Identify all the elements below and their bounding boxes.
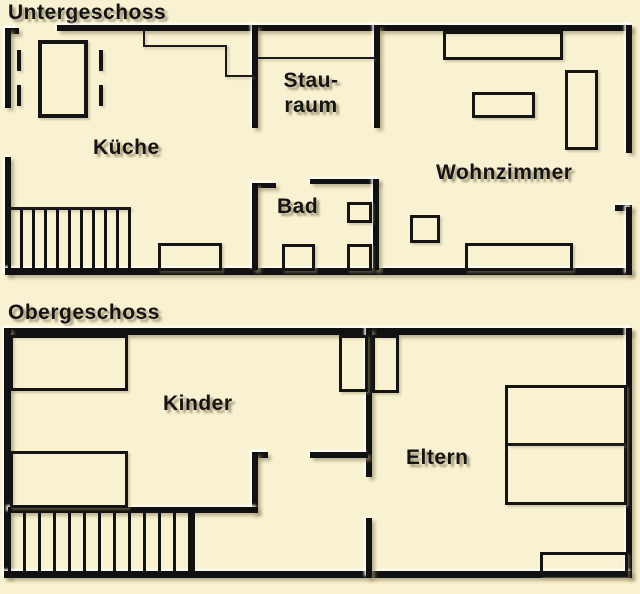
- kitchen-chair-mark: [17, 50, 21, 71]
- floor-plan: Untergeschoss Küche Stau- raum Bad Wohn: [0, 0, 640, 594]
- hall-left-wall: [252, 452, 258, 513]
- kitchen-counter-line: [225, 75, 253, 77]
- room-label-kueche: Küche: [93, 136, 160, 160]
- room-label-eltern: Eltern: [406, 446, 469, 470]
- eltern-bed-divider: [508, 443, 624, 446]
- upper-stairs: [8, 513, 195, 571]
- kitchen-chair-mark: [99, 50, 103, 71]
- room-label-bad: Bad: [277, 195, 318, 219]
- kinder-bed-upper: [10, 335, 128, 391]
- livingroom-armchair: [410, 215, 440, 243]
- bad-fixture-lower: [347, 244, 372, 271]
- livingroom-side-sofa: [565, 70, 598, 150]
- bad-left-wall: [252, 183, 258, 270]
- lower-left-wall-upper: [5, 28, 11, 108]
- divider-wall-lower: [366, 518, 372, 578]
- upper-bottom-wall: [4, 571, 632, 578]
- kinder-bed-lower: [10, 451, 128, 508]
- closet-left-of-divider: [339, 335, 368, 392]
- kitchen-chair-mark: [99, 85, 103, 106]
- room-label-stauraum-line1: Stau-: [284, 69, 339, 92]
- room-label-stauraum-line2: raum: [284, 94, 337, 117]
- bad-top-wall: [310, 179, 379, 184]
- lower-right-wall-lower: [626, 207, 632, 275]
- livingroom-coffee-table: [472, 92, 535, 118]
- eltern-dresser: [540, 552, 628, 577]
- livingroom-sofa: [465, 243, 573, 271]
- hall-top-wall: [310, 452, 368, 458]
- closet-right-of-divider: [372, 335, 399, 393]
- lower-floor-title: Untergeschoss: [8, 1, 166, 25]
- room-label-stauraum: Stau- raum: [268, 68, 354, 118]
- stauraum-shelf-line: [258, 57, 374, 59]
- bad-fixture-upper: [347, 202, 372, 223]
- kitchen-table: [38, 40, 88, 118]
- livingroom-sideboard: [443, 31, 563, 60]
- lower-right-wall-upper: [626, 25, 632, 153]
- kitchen-cabinet: [158, 243, 222, 271]
- stauraum-right-wall: [374, 25, 380, 128]
- room-label-wohnzimmer: Wohnzimmer: [436, 161, 572, 185]
- kitchen-chair-mark: [17, 85, 21, 106]
- bad-sink: [282, 244, 315, 271]
- upper-floor-title: Obergeschoss: [8, 301, 160, 325]
- kitchen-counter-line: [225, 45, 227, 77]
- upper-top-wall: [8, 328, 632, 335]
- lower-stairs: [8, 210, 131, 268]
- bad-right-wall: [373, 179, 379, 270]
- room-label-kinder: Kinder: [163, 392, 233, 416]
- kitchen-counter-line: [143, 45, 227, 47]
